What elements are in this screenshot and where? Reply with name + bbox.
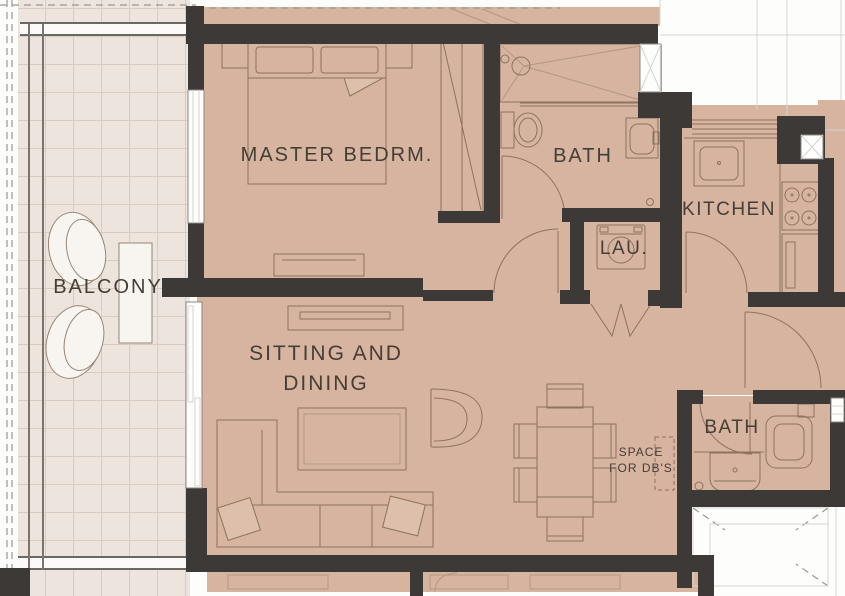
- room-label-sitting-dining: SITTING AND DINING: [249, 339, 403, 399]
- hallway-door: [494, 229, 558, 293]
- shower-drain: [512, 57, 530, 75]
- tv: [300, 312, 390, 319]
- floor-plan: BALCONY MASTER BEDRM. BATH KITCHEN LAU. …: [0, 0, 845, 596]
- db-space-line1: SPACE: [609, 444, 673, 460]
- dresser: [274, 254, 364, 276]
- bath-bottom-fixtures: [694, 402, 814, 493]
- bedroom-window: [188, 90, 204, 223]
- entrance-door: [745, 312, 821, 388]
- room-label-bath-top: BATH: [553, 145, 613, 168]
- neighbor-unit-outlines: [228, 573, 620, 592]
- shower: [500, 44, 640, 102]
- armchair: [431, 389, 482, 447]
- dining-table: [537, 407, 593, 517]
- bath2-window: [831, 398, 844, 422]
- sitting-dining-line2: DINING: [249, 369, 403, 399]
- vanity-sink: [710, 453, 760, 493]
- bifold-door: [621, 304, 651, 336]
- floor-drain: [647, 199, 654, 206]
- db-space-line2: FOR DB'S: [609, 460, 673, 476]
- room-label-balcony: BALCONY: [53, 276, 163, 299]
- annotation-db-space: SPACE FOR DB'S: [609, 444, 673, 476]
- nightstand: [386, 42, 412, 68]
- room-label-laundry: LAU.: [600, 238, 648, 260]
- room-label-master-bedroom: MASTER BEDRM.: [241, 144, 434, 167]
- coffee-table: [298, 408, 406, 470]
- pillow: [256, 47, 313, 73]
- door-swing: [494, 229, 558, 293]
- nightstand: [222, 42, 248, 68]
- shower-head-icon: [501, 55, 509, 63]
- tv-console: [288, 306, 403, 330]
- pillow: [321, 47, 378, 73]
- sofa-cushion: [383, 496, 426, 536]
- sofa-cushion: [218, 498, 261, 541]
- room-label-bath-bottom: BATH: [704, 417, 759, 439]
- floor-drain: [695, 482, 703, 490]
- dining-chairs: [514, 384, 616, 541]
- bifold-door: [591, 304, 621, 336]
- room-label-kitchen: KITCHEN: [682, 199, 776, 221]
- toilet-tank: [501, 112, 514, 148]
- door-swing: [686, 232, 747, 293]
- bath-top-fixtures: [500, 44, 659, 219]
- blanket-fold: [344, 78, 383, 96]
- sitting-dining-line1: SITTING AND: [249, 339, 403, 369]
- door-swing: [745, 312, 821, 388]
- kitchen-cabinet: [782, 234, 819, 294]
- toilet-tank: [798, 404, 814, 417]
- kitchen-sink: [694, 141, 744, 186]
